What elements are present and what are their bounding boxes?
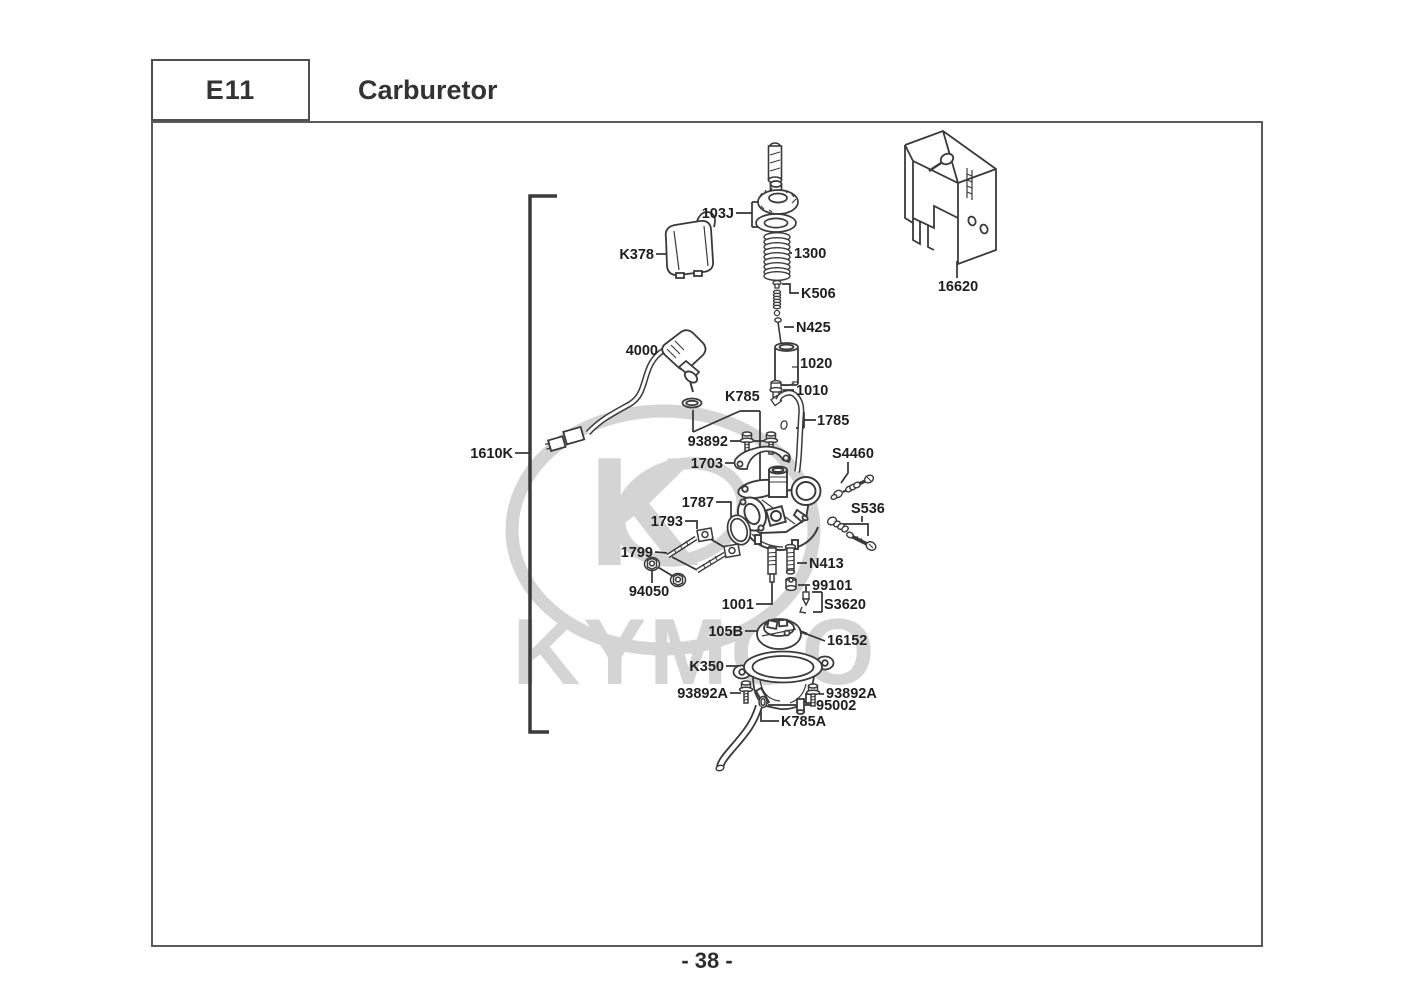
part-label-1610K: 1610K xyxy=(470,446,513,462)
part-hose-K785A xyxy=(715,706,759,772)
part-label-99101: 99101 xyxy=(812,578,852,594)
part-jet-1001 xyxy=(768,546,776,582)
watermark-k-letter: K xyxy=(588,425,700,598)
part-drainset-S4460 xyxy=(830,474,874,501)
part-label-95002: 95002 xyxy=(816,698,856,714)
part-screw-N413 xyxy=(786,545,796,575)
part-drainset-S536 xyxy=(826,516,877,552)
part-top-cap-103J xyxy=(756,181,798,232)
part-label-1703: 1703 xyxy=(691,456,723,472)
part-label-1020: 1020 xyxy=(800,356,832,372)
part-label-4000: 4000 xyxy=(626,343,658,359)
part-label-94050: 94050 xyxy=(629,584,669,600)
part-label-93892A-left: 93892A xyxy=(677,686,728,702)
part-label-1001: 1001 xyxy=(722,597,754,613)
part-clamp-95002 xyxy=(759,697,767,708)
part-spring-1300 xyxy=(764,233,790,281)
part-bracket-16620 xyxy=(905,131,996,264)
part-label-N413: N413 xyxy=(809,556,844,572)
part-screwset-K506 xyxy=(773,281,781,316)
part-label-K378: K378 xyxy=(619,247,654,263)
part-label-1010: 1010 xyxy=(796,383,828,399)
part-throttle-valve-1020 xyxy=(775,343,798,386)
part-label-1785: 1785 xyxy=(817,413,849,429)
catalog-page: E11 Carburetor K KYMCO xyxy=(0,0,1415,1000)
part-label-16152: 16152 xyxy=(827,633,867,649)
part-label-K506: K506 xyxy=(801,286,836,302)
part-label-103J: 103J xyxy=(702,206,734,222)
part-cable-adjuster xyxy=(769,143,782,183)
part-needle-N425 xyxy=(775,318,782,347)
part-label-K350: K350 xyxy=(689,659,724,675)
part-label-16620: 16620 xyxy=(938,279,978,295)
part-label-105B: 105B xyxy=(708,624,743,640)
part-label-S4460: S4460 xyxy=(832,446,874,462)
part-label-1300: 1300 xyxy=(794,246,826,262)
part-label-S3620: S3620 xyxy=(824,597,866,613)
part-plug-99101 xyxy=(786,578,796,591)
page-number: - 38 - xyxy=(151,948,1263,974)
part-label-1793: 1793 xyxy=(651,514,683,530)
part-label-93892: 93892 xyxy=(688,434,728,450)
part-label-N425: N425 xyxy=(796,320,831,336)
part-label-K785A: K785A xyxy=(781,714,827,730)
part-label-S536: S536 xyxy=(851,501,885,517)
part-label-1787: 1787 xyxy=(682,495,714,511)
part-label-K785: K785 xyxy=(725,389,760,405)
part-label-1799: 1799 xyxy=(621,545,653,561)
exploded-diagram: K KYMCO xyxy=(0,0,1415,1000)
